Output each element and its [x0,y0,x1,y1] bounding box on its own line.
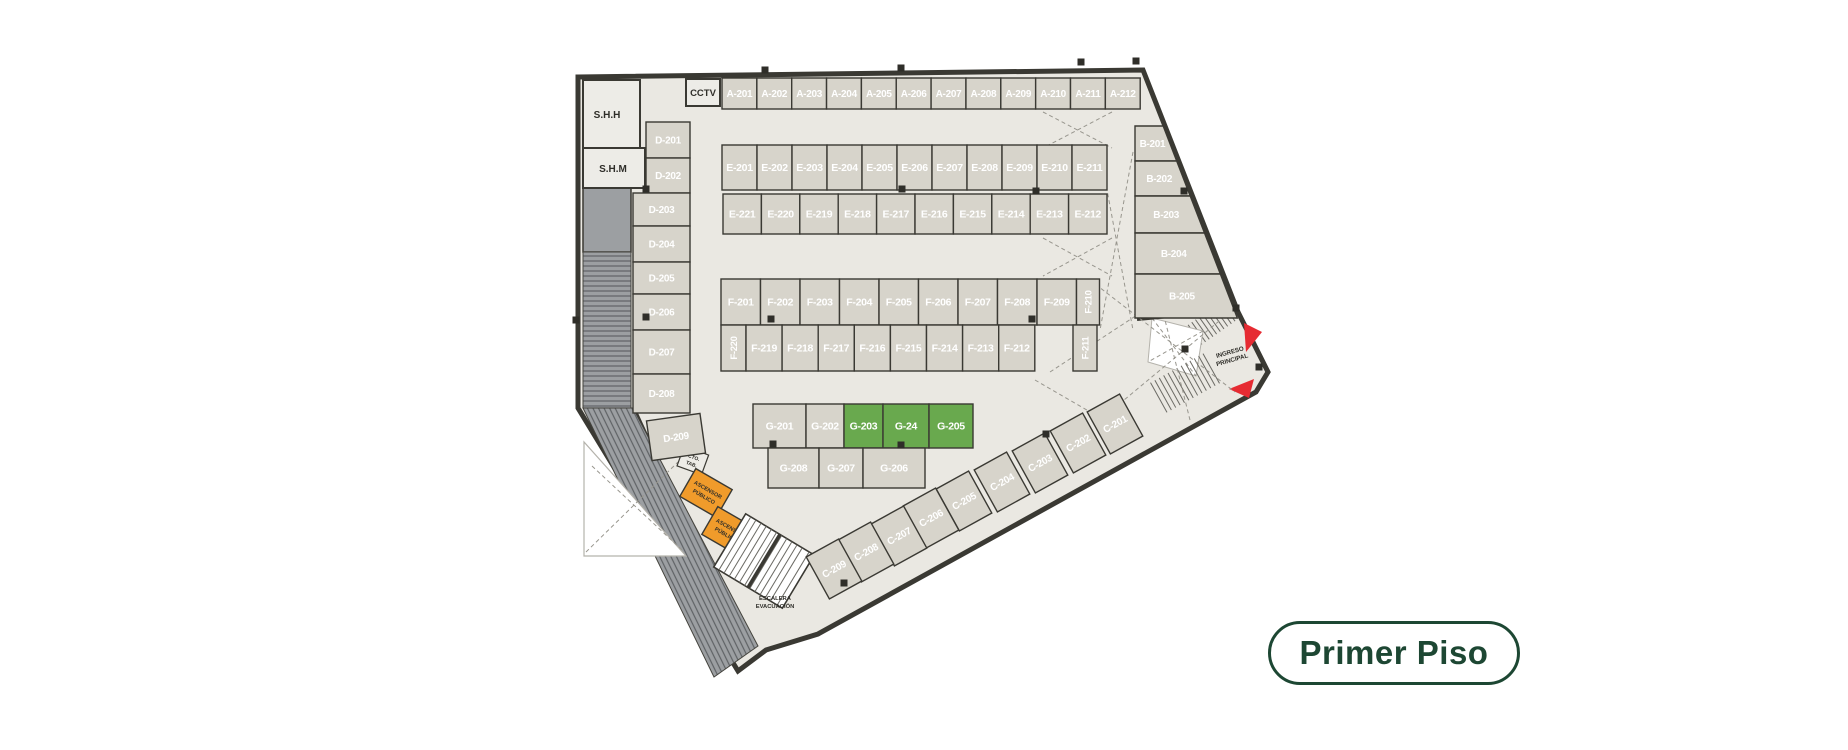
parking-stall-D-201[interactable]: D-201 [646,122,690,158]
parking-stall-F-218[interactable]: F-218 [782,325,818,371]
svg-text:G-207: G-207 [827,463,855,475]
column-marker [898,442,905,449]
svg-text:B-201: B-201 [1140,139,1166,150]
svg-text:F-203: F-203 [807,297,833,309]
svg-text:E-220: E-220 [767,209,794,221]
svg-text:F-212: F-212 [1004,343,1030,355]
room-cctv: CCTV [686,79,720,106]
parking-stall-D-203[interactable]: D-203 [633,193,690,226]
svg-text:A-211: A-211 [1075,89,1101,100]
parking-stall-E-215[interactable]: E-215 [953,194,991,234]
parking-stall-F-203[interactable]: F-203 [800,279,840,325]
parking-stall-E-212[interactable]: E-212 [1069,194,1107,234]
svg-text:F-213: F-213 [968,343,994,355]
svg-text:F-218: F-218 [787,343,813,355]
parking-stall-G-203[interactable]: G-203 [844,404,883,448]
svg-text:D-206: D-206 [649,308,675,319]
column-marker [1233,305,1240,312]
column-marker [899,186,906,193]
parking-stall-E-206[interactable]: E-206 [897,145,932,190]
parking-stall-F-206[interactable]: F-206 [919,279,959,325]
svg-text:A-208: A-208 [971,89,997,100]
svg-text:A-206: A-206 [901,89,927,100]
svg-text:G-24: G-24 [895,421,918,433]
parking-stall-E-207[interactable]: E-207 [932,145,967,190]
svg-text:E-201: E-201 [726,162,753,174]
svg-text:E-217: E-217 [883,209,910,221]
parking-stall-F-207[interactable]: F-207 [958,279,998,325]
parking-stall-E-203[interactable]: E-203 [792,145,827,190]
svg-text:G-203: G-203 [850,421,878,433]
svg-text:F-216: F-216 [859,343,885,355]
room-shm: S.H.M [583,148,645,188]
parking-stall-D-209[interactable]: D-209 [646,413,705,460]
parking-stall-F-216[interactable]: F-216 [854,325,890,371]
svg-text:E-205: E-205 [866,162,893,174]
column-marker [643,314,650,321]
floor-badge-label: Primer Piso [1300,634,1489,672]
service-block [583,188,631,252]
parking-stall-F-215[interactable]: F-215 [890,325,926,371]
svg-text:E-218: E-218 [844,209,871,221]
column-marker [1256,364,1263,371]
parking-stall-F-201[interactable]: F-201 [721,279,761,325]
svg-text:E-209: E-209 [1006,162,1033,174]
svg-text:F-214: F-214 [932,343,958,355]
svg-text:D-203: D-203 [649,205,675,216]
room-shh: S.H.H [583,80,640,148]
parking-stall-A-203[interactable]: A-203 [792,78,827,109]
parking-stall-E-217[interactable]: E-217 [877,194,915,234]
column-marker [762,67,769,74]
svg-text:E-211: E-211 [1077,162,1103,174]
parking-stall-E-201[interactable]: E-201 [722,145,757,190]
evacuation-stair-label-line1: ESCALERA [759,596,792,602]
svg-text:B-205: B-205 [1169,292,1195,303]
parking-stall-E-221[interactable]: E-221 [723,194,761,234]
parking-stall-G-201[interactable]: G-201 [753,404,806,448]
parking-stall-F-214[interactable]: F-214 [927,325,963,371]
column-marker [1182,346,1189,353]
parking-stall-D-206[interactable]: D-206 [633,294,690,330]
parking-stall-A-201[interactable]: A-201 [722,78,757,109]
svg-text:G-206: G-206 [880,463,908,475]
svg-text:F-206: F-206 [925,297,951,309]
parking-stall-D-204[interactable]: D-204 [633,226,690,262]
svg-text:F-201: F-201 [728,297,754,309]
svg-text:D-201: D-201 [655,136,681,147]
svg-text:F-219: F-219 [751,343,777,355]
svg-text:D-204: D-204 [649,240,675,251]
parking-stall-F-212[interactable]: F-212 [999,325,1035,371]
svg-text:E-202: E-202 [761,162,788,174]
column-marker [1033,188,1040,195]
svg-text:E-207: E-207 [936,162,963,174]
parking-stall-A-206[interactable]: A-206 [896,78,931,109]
parking-stall-E-213[interactable]: E-213 [1030,194,1068,234]
svg-text:F-217: F-217 [823,343,849,355]
svg-text:E-204: E-204 [831,162,858,174]
svg-text:E-214: E-214 [998,209,1025,221]
svg-text:E-213: E-213 [1036,209,1063,221]
parking-stall-E-219[interactable]: E-219 [800,194,838,234]
parking-stall-D-208[interactable]: D-208 [633,374,690,413]
parking-stall-E-220[interactable]: E-220 [761,194,799,234]
svg-text:E-208: E-208 [971,162,998,174]
parking-stall-A-212[interactable]: A-212 [1105,78,1140,109]
parking-stall-D-205[interactable]: D-205 [633,262,690,294]
svg-text:B-203: B-203 [1153,210,1179,221]
svg-text:F-220: F-220 [729,336,740,359]
parking-stall-G-205[interactable]: G-205 [929,404,973,448]
svg-text:F-204: F-204 [846,297,872,309]
svg-text:E-212: E-212 [1075,209,1102,221]
parking-stall-A-211[interactable]: A-211 [1071,78,1106,109]
svg-text:E-203: E-203 [796,162,823,174]
column-marker [898,65,905,72]
parking-stall-G-207[interactable]: G-207 [819,448,863,488]
parking-stall-F-205[interactable]: F-205 [879,279,919,325]
svg-text:G-205: G-205 [937,421,965,433]
svg-text:A-202: A-202 [761,89,787,100]
parking-stall-F-220[interactable]: F-220 [721,325,746,371]
svg-text:D-202: D-202 [655,171,681,182]
parking-stall-D-207[interactable]: D-207 [633,330,690,374]
svg-text:E-210: E-210 [1041,162,1068,174]
parking-stall-F-213[interactable]: F-213 [963,325,999,371]
svg-text:D-205: D-205 [649,274,675,285]
column-marker [1043,431,1050,438]
svg-text:A-205: A-205 [866,89,892,100]
svg-text:F-210: F-210 [1084,290,1095,313]
svg-text:D-207: D-207 [649,348,675,359]
parking-stall-A-209[interactable]: A-209 [1001,78,1036,109]
parking-stall-A-204[interactable]: A-204 [827,78,862,109]
parking-stall-F-204[interactable]: F-204 [840,279,880,325]
parking-stall-E-210[interactable]: E-210 [1037,145,1072,190]
parking-stall-F-217[interactable]: F-217 [818,325,854,371]
svg-text:E-216: E-216 [921,209,948,221]
svg-text:D-208: D-208 [649,389,675,400]
svg-text:F-205: F-205 [886,297,912,309]
parking-stall-D-202[interactable]: D-202 [646,158,690,193]
svg-text:E-219: E-219 [806,209,833,221]
svg-text:A-204: A-204 [831,89,857,100]
svg-text:G-208: G-208 [780,463,808,475]
parking-stall-E-218[interactable]: E-218 [838,194,876,234]
floor-plan: S.H.H S.H.M CCTV CTO. TAB. ASCENSOR PÚBL… [0,0,1848,750]
parking-stall-G-208[interactable]: G-208 [768,448,819,488]
parking-stall-F-219[interactable]: F-219 [746,325,782,371]
parking-stall-E-211[interactable]: E-211 [1072,145,1107,190]
parking-stall-F-202[interactable]: F-202 [761,279,801,325]
column-marker [841,580,848,587]
parking-stall-E-204[interactable]: E-204 [827,145,862,190]
parking-stall-E-202[interactable]: E-202 [757,145,792,190]
svg-text:F-208: F-208 [1004,297,1030,309]
svg-text:A-212: A-212 [1110,89,1136,100]
parking-stall-E-214[interactable]: E-214 [992,194,1030,234]
svg-text:F-211: F-211 [1081,336,1092,360]
parking-stall-E-209[interactable]: E-209 [1002,145,1037,190]
svg-text:F-215: F-215 [895,343,921,355]
svg-text:E-215: E-215 [959,209,986,221]
svg-text:G-201: G-201 [766,421,794,433]
column-marker [573,317,580,324]
parking-stall-F-211[interactable]: F-211 [1073,325,1097,371]
svg-text:E-221: E-221 [729,209,756,221]
svg-text:F-207: F-207 [965,297,991,309]
svg-text:A-210: A-210 [1040,89,1066,100]
svg-text:F-202: F-202 [767,297,793,309]
parking-stall-F-209[interactable]: F-209 [1037,279,1077,325]
parking-stall-B-201[interactable]: B-201 [1135,126,1177,161]
parking-stall-A-207[interactable]: A-207 [931,78,966,109]
parking-stall-A-208[interactable]: A-208 [966,78,1001,109]
column-marker [770,441,777,448]
svg-text:A-203: A-203 [796,89,822,100]
svg-text:B-204: B-204 [1161,249,1187,260]
vehicle-ramp-upper [583,252,631,408]
svg-text:A-209: A-209 [1005,89,1031,100]
parking-stall-B-204[interactable]: B-204 [1135,233,1220,274]
parking-stall-E-208[interactable]: E-208 [967,145,1002,190]
parking-stall-E-205[interactable]: E-205 [862,145,897,190]
room-cctv-label: CCTV [690,88,717,99]
column-marker [1133,58,1140,65]
svg-text:E-206: E-206 [901,162,928,174]
room-shh-label: S.H.H [594,110,621,121]
floor-plan-canvas: S.H.H S.H.M CCTV CTO. TAB. ASCENSOR PÚBL… [0,0,1848,750]
svg-text:F-209: F-209 [1044,297,1070,309]
svg-text:A-201: A-201 [727,89,753,100]
parking-stall-B-205[interactable]: B-205 [1135,274,1237,318]
parking-stall-G-202[interactable]: G-202 [806,404,844,448]
column-marker [1181,188,1188,195]
svg-text:B-202: B-202 [1146,174,1172,185]
floor-badge: Primer Piso [1268,621,1520,685]
parking-stall-F-210[interactable]: F-210 [1077,279,1100,325]
column-marker [768,316,775,323]
parking-stall-E-216[interactable]: E-216 [915,194,953,234]
column-marker [1029,316,1036,323]
parking-stall-A-210[interactable]: A-210 [1036,78,1071,109]
column-marker [1078,59,1085,66]
room-shm-label: S.H.M [599,164,627,175]
evacuation-stair-label-line2: EVACUACIÓN [756,602,795,610]
svg-text:A-207: A-207 [936,89,962,100]
svg-text:G-202: G-202 [811,421,839,433]
parking-stall-A-202[interactable]: A-202 [757,78,792,109]
parking-stall-G-24[interactable]: G-24 [883,404,929,448]
column-marker [643,186,650,193]
parking-stall-G-206[interactable]: G-206 [863,448,925,488]
parking-stall-A-205[interactable]: A-205 [861,78,896,109]
